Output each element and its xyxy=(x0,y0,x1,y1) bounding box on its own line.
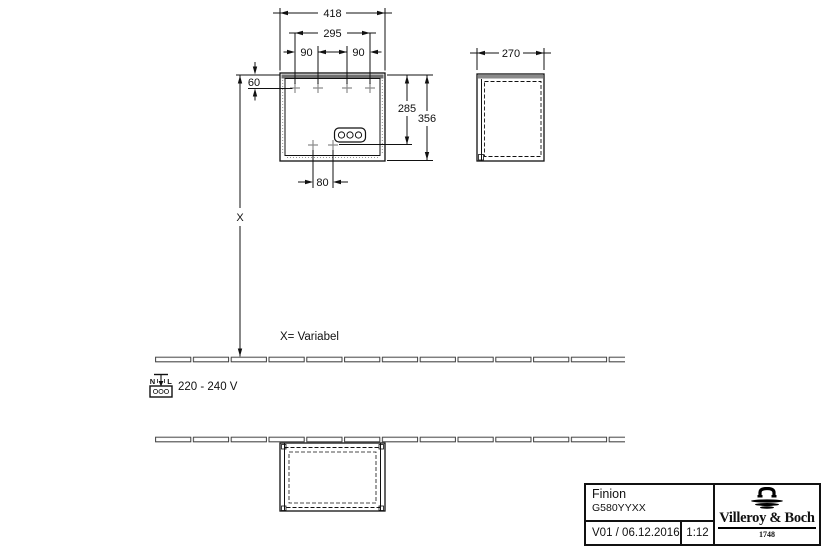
brand-name: Villeroy & Boch xyxy=(718,511,815,529)
dim-285: 285 xyxy=(398,103,416,115)
front-view xyxy=(280,73,385,161)
dim-80: 80 xyxy=(316,177,328,189)
wall-line-lower xyxy=(155,437,625,443)
brand-year: 1748 xyxy=(759,530,775,539)
title-block-left: Finion G580YYXX V01 / 06.12.2016 1:12 xyxy=(586,485,713,544)
dim-270: 270 xyxy=(502,48,520,60)
side-top-panel xyxy=(478,75,543,79)
dim-90-left: 90 xyxy=(300,47,312,59)
wall-line-upper xyxy=(155,357,625,363)
dim-90-right: 90 xyxy=(352,47,364,59)
front-top-panel xyxy=(282,75,384,79)
x-note-label: X= Variabel xyxy=(280,331,339,343)
dim-418: 418 xyxy=(323,8,341,20)
side-view xyxy=(477,74,544,161)
drawing-stage: X X= Variabel xyxy=(0,0,821,546)
socket-n-label: N xyxy=(150,377,155,386)
drawing-scale: 1:12 xyxy=(680,522,713,544)
brand-logo: Villeroy & Boch 1748 xyxy=(713,485,819,544)
power-socket-icon: N L xyxy=(150,375,172,398)
product-name: Finion xyxy=(592,487,713,502)
title-block: Finion G580YYXX V01 / 06.12.2016 1:12 Vi… xyxy=(584,483,821,546)
vb-crest-icon xyxy=(747,487,787,511)
x-dim-label: X xyxy=(236,212,244,224)
dim-60: 60 xyxy=(248,77,260,89)
socket-l-label: L xyxy=(167,377,172,386)
dim-295: 295 xyxy=(323,28,341,40)
version-date: V01 / 06.12.2016 xyxy=(586,522,680,544)
product-cell: Finion G580YYXX xyxy=(586,485,713,520)
revision-row: V01 / 06.12.2016 1:12 xyxy=(586,520,713,544)
voltage-label: 220 - 240 V xyxy=(178,381,238,393)
x-dimension: X xyxy=(236,75,280,357)
product-code: G580YYXX xyxy=(592,502,713,514)
plan-view xyxy=(280,443,385,511)
dim-356: 356 xyxy=(418,113,436,125)
side-view-dimension: 270 xyxy=(470,48,551,70)
technical-drawing: X X= Variabel xyxy=(0,0,821,546)
